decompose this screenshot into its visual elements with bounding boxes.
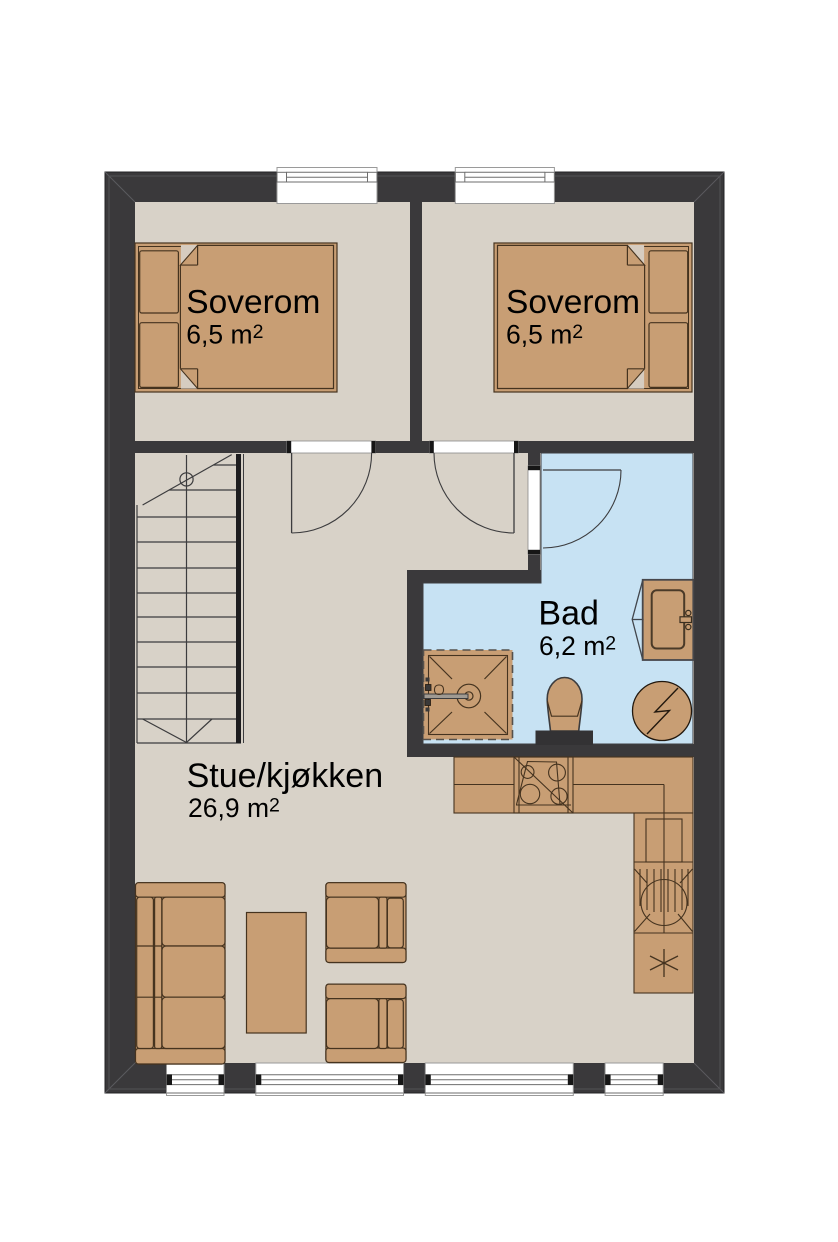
svg-text:Soverom: Soverom <box>506 284 640 321</box>
svg-text:6,2 m2: 6,2 m2 <box>539 631 616 661</box>
svg-text:6,5 m2: 6,5 m2 <box>186 320 263 350</box>
svg-text:Stue/kjøkken: Stue/kjøkken <box>187 757 384 795</box>
svg-text:Bad: Bad <box>538 595 599 633</box>
svg-text:26,9 m2: 26,9 m2 <box>188 793 280 823</box>
svg-text:6,5 m2: 6,5 m2 <box>506 320 583 350</box>
svg-text:Soverom: Soverom <box>186 284 320 321</box>
